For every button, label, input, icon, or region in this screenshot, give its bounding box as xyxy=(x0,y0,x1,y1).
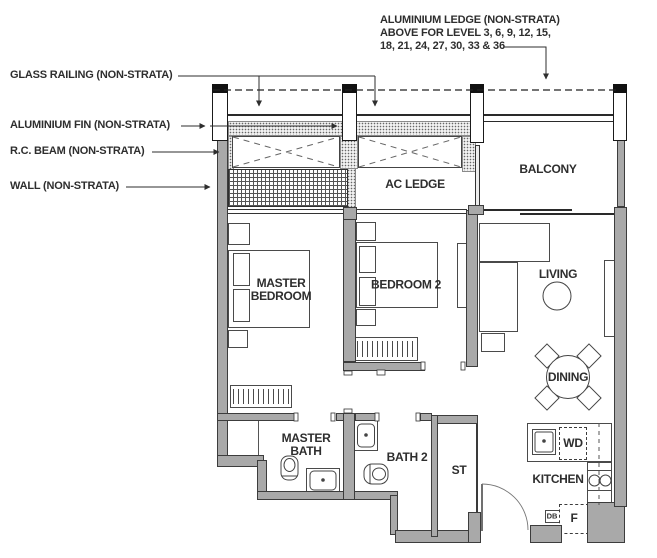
bedroom2-label: BEDROOM 2 xyxy=(366,278,446,291)
glass-railing-line xyxy=(228,114,614,116)
facade-column-2-cap xyxy=(342,84,357,93)
rc-beam-note: R.C. BEAM (NON-STRATA) xyxy=(10,145,145,157)
non-strata-wall-hatch xyxy=(228,169,348,207)
balcony-railing-inner-line xyxy=(484,121,614,122)
db-label: DB xyxy=(547,512,558,521)
balcony-label: BALCONY xyxy=(519,162,576,176)
entrance-door xyxy=(482,484,528,531)
wall-west xyxy=(217,140,228,460)
bedroom2-nightstand-2 xyxy=(356,309,376,326)
sofa-chaise xyxy=(479,223,550,262)
bedroom2-window xyxy=(357,209,467,214)
master-bath-vanity xyxy=(306,468,340,493)
wall-st-top xyxy=(431,415,478,424)
wall-bath-bottom xyxy=(257,491,398,500)
master-bedroom-label: MASTER BEDROOM xyxy=(236,277,326,303)
rc-beam-box-1 xyxy=(232,136,340,168)
master-wardrobe xyxy=(230,385,292,408)
wall-door-hinge-block xyxy=(468,512,481,543)
acledge-balcony-divider xyxy=(475,145,480,207)
wall-note: WALL (NON-STRATA) xyxy=(10,180,119,192)
store-label: ST xyxy=(452,463,467,477)
dining-label: DINING xyxy=(548,370,588,384)
wall-br2-bottom xyxy=(343,362,425,371)
wall-door-strike-block xyxy=(530,525,562,543)
aluminium-ledge-note-line2: ABOVE FOR LEVEL 3, 6, 9, 12, 15, xyxy=(380,27,551,39)
balcony-slider-panel-2 xyxy=(520,213,614,215)
sofa-side-table xyxy=(481,333,505,352)
wardrobe-hatch xyxy=(357,341,415,357)
ac-ledge-label: AC LEDGE xyxy=(385,177,445,191)
wall-mbath-top-a xyxy=(217,413,298,421)
wall-east xyxy=(614,207,627,507)
wall-br2-living xyxy=(466,210,478,367)
master-nightstand-1 xyxy=(228,223,250,245)
floor-plan: ALUMINIUM LEDGE (NON-STRATA) ABOVE FOR L… xyxy=(0,0,657,558)
master-bath-toilet xyxy=(281,456,298,480)
wall-st-west xyxy=(431,415,438,537)
sofa-seat xyxy=(479,262,518,332)
wall-entry-west-v xyxy=(390,495,398,535)
rc-beam-box-2 xyxy=(358,136,462,168)
glass-railing-note: GLASS RAILING (NON-STRATA) xyxy=(10,69,172,81)
facade-column-3-cap xyxy=(470,84,484,93)
coffee-table xyxy=(543,282,571,310)
wall-mbr-br2 xyxy=(343,214,356,362)
wall-bath2-top-a xyxy=(355,413,377,421)
facade-column-1-cap xyxy=(212,84,228,93)
fridge-label: F xyxy=(570,511,577,525)
aluminium-ledge-note-line1: ALUMINIUM LEDGE (NON-STRATA) xyxy=(380,14,560,26)
wall-bath2-west xyxy=(343,413,355,500)
kitchen-label: KITCHEN xyxy=(532,472,583,486)
wardrobe-hatch xyxy=(233,389,289,404)
master-bath-label: MASTER BATH xyxy=(271,432,341,458)
wall-living-nw-block xyxy=(468,205,484,215)
bath2-label: BATH 2 xyxy=(387,450,428,464)
bath2-toilet xyxy=(364,464,388,484)
facade-column-4-cap xyxy=(613,84,627,93)
master-bath-shower xyxy=(228,421,259,456)
wall-bottom-right-block xyxy=(587,502,625,543)
aluminium-fin-note: ALUMINIUM FIN (NON-STRATA) xyxy=(10,119,170,131)
bedroom2-wardrobe xyxy=(354,337,418,361)
living-label: LIVING xyxy=(539,267,577,281)
master-nightstand-2 xyxy=(228,330,248,348)
wall-window-mullion xyxy=(343,207,357,220)
bedroom2-pillow-1 xyxy=(359,246,376,273)
kitchen-hob xyxy=(587,470,612,491)
master-bedroom-window xyxy=(228,209,343,214)
wall-balcony-east xyxy=(617,140,625,207)
bedroom2-nightstand-1 xyxy=(356,222,376,241)
aluminium-ledge-note-line3: 18, 21, 24, 27, 30, 33 & 36 xyxy=(380,40,505,52)
washer-dryer-label: WD xyxy=(563,436,582,450)
kitchen-sink xyxy=(532,429,556,455)
bath2-vanity xyxy=(354,420,378,451)
balcony-slider-panel-1 xyxy=(484,209,572,211)
